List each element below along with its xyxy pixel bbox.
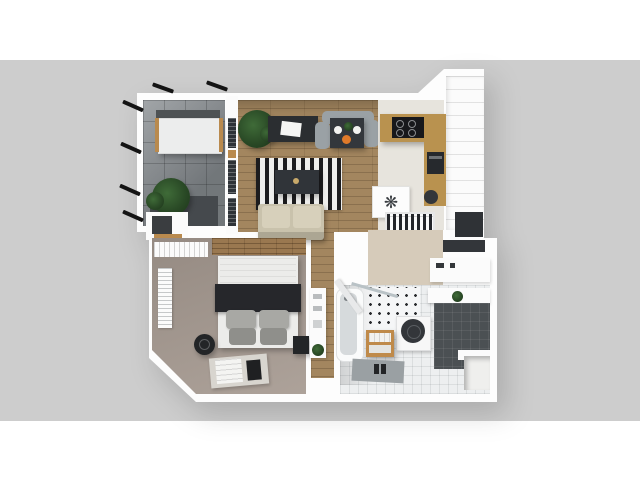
fruit-plate — [342, 135, 351, 144]
speaker-cone — [199, 339, 210, 350]
hall-counter — [430, 258, 490, 282]
burner-icon — [408, 129, 416, 137]
magazine — [246, 359, 262, 380]
burner-icon — [396, 129, 404, 137]
shelf-item — [313, 294, 322, 299]
washer-drum-ring — [407, 325, 421, 339]
entry-nook-recess — [152, 216, 172, 234]
plate — [334, 126, 342, 134]
daybed-frame — [219, 118, 223, 152]
slipper — [381, 364, 386, 374]
burner-icon — [408, 120, 416, 128]
slatted-window — [228, 160, 236, 194]
counter-item — [450, 263, 455, 268]
towels — [369, 333, 391, 342]
burner-icon — [396, 120, 404, 128]
bed-sheet — [220, 258, 296, 284]
entry-closet — [154, 242, 208, 257]
balcony-plant-leaf — [146, 192, 164, 210]
shelf-plant — [312, 344, 324, 356]
hall-niche — [455, 212, 483, 237]
daybed — [158, 118, 222, 154]
stool-shelf — [369, 345, 391, 353]
oven-handle — [429, 156, 442, 159]
sofa-cushion — [262, 206, 290, 228]
dining-chair — [364, 120, 379, 147]
sofa-cushion — [293, 206, 321, 228]
window-frame — [228, 150, 236, 158]
slatted-window — [228, 118, 236, 148]
bed-blanket — [215, 284, 301, 312]
hall-console-shelf — [443, 240, 485, 252]
slipper — [374, 364, 379, 374]
tv-console-paper — [280, 121, 302, 137]
plate — [353, 126, 361, 134]
pillow — [260, 328, 287, 345]
wood-accent-wall — [212, 238, 306, 255]
vanity-plant — [452, 291, 463, 302]
dining-chair — [315, 122, 330, 149]
shelf-item — [313, 320, 322, 328]
table-plant — [344, 122, 353, 131]
shelf-item — [313, 306, 322, 311]
daybed-frame — [155, 118, 159, 152]
open-magazine — [215, 358, 243, 384]
speaker — [293, 336, 309, 354]
pillow — [259, 310, 289, 329]
pillow — [226, 310, 256, 329]
kitchen-sink — [424, 190, 438, 204]
fan-icon: ❋ — [384, 194, 398, 211]
radiator — [158, 268, 172, 328]
tall-cabinets — [446, 76, 484, 230]
pillow — [229, 328, 256, 345]
slatted-window — [228, 198, 236, 226]
lower-wall-niche — [464, 356, 490, 390]
table-decor — [293, 178, 299, 184]
counter-item — [436, 263, 444, 268]
